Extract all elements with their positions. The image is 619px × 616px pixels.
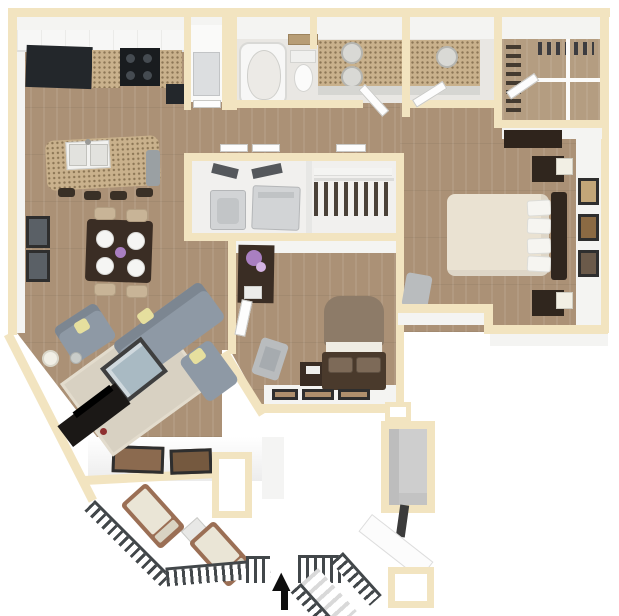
washer-lid bbox=[217, 198, 239, 224]
patio-column-pad bbox=[388, 567, 434, 608]
closet-clothes-left bbox=[506, 42, 521, 112]
corner-cabinet bbox=[25, 45, 92, 89]
burner-3 bbox=[126, 71, 135, 80]
left-wall-face bbox=[17, 30, 25, 333]
master-pillow-1 bbox=[527, 199, 552, 216]
master-wall-bottom-left bbox=[396, 304, 493, 313]
porch-railing-left bbox=[246, 556, 270, 583]
toilet-bowl bbox=[294, 64, 313, 92]
bed2-leaning-frame-3 bbox=[338, 389, 370, 400]
bar-stool-1 bbox=[58, 188, 75, 197]
outer-wall-top bbox=[8, 8, 610, 17]
master-wall-art-1 bbox=[578, 178, 599, 205]
master-wall-bottom-face-2 bbox=[490, 334, 608, 346]
sink-basin-left bbox=[69, 144, 87, 166]
laundry-wall-right bbox=[396, 153, 404, 241]
bar-stool-2 bbox=[84, 191, 101, 200]
wall-art-kitchen-1 bbox=[26, 216, 50, 248]
wall-art-kitchen-2 bbox=[26, 250, 50, 282]
burner-2 bbox=[143, 54, 152, 63]
master-wall-bottom-face-1 bbox=[398, 313, 484, 325]
dining-chair-1 bbox=[94, 207, 116, 220]
counter-end-cabinet bbox=[166, 84, 186, 104]
floor-lamp bbox=[42, 350, 59, 367]
laundry-wall-bottom bbox=[184, 233, 404, 241]
pantry-wall-right bbox=[222, 17, 229, 110]
backsplash-left bbox=[92, 50, 120, 88]
backsplash-right bbox=[160, 50, 182, 88]
master-pillow-2 bbox=[527, 218, 552, 235]
plate-1 bbox=[96, 230, 114, 248]
dryer-panel bbox=[258, 192, 294, 198]
master-wall-art-3 bbox=[578, 250, 599, 277]
master-lamp-2 bbox=[556, 292, 573, 309]
laundry-bifold-door-1 bbox=[220, 144, 248, 152]
outer-wall-right bbox=[600, 8, 609, 333]
dishwasher-end-cap bbox=[146, 150, 160, 186]
patio-storage-interior bbox=[389, 429, 427, 505]
patio-notch bbox=[385, 402, 411, 422]
bed2-leaning-frame-2 bbox=[302, 389, 334, 400]
bath1-wall-bottom bbox=[229, 100, 363, 108]
hall-closet-door bbox=[336, 144, 366, 152]
bar-stool-3 bbox=[110, 191, 127, 200]
pantry-wall-left bbox=[184, 17, 191, 110]
hall-closet-shelf bbox=[314, 168, 392, 176]
dining-chair-2 bbox=[126, 209, 148, 222]
bed2-pillow-2 bbox=[356, 357, 381, 373]
laundry-wall-left bbox=[184, 153, 192, 241]
sink-basin-right bbox=[90, 144, 108, 166]
bed2-wall-left bbox=[228, 241, 236, 354]
entry-side-wall bbox=[262, 437, 284, 499]
dining-chair-4 bbox=[126, 285, 148, 298]
toilet-tank bbox=[290, 50, 316, 63]
master-headboard bbox=[551, 192, 567, 280]
master-pillow-4 bbox=[527, 255, 552, 272]
side-table bbox=[70, 352, 82, 364]
bath2-sink bbox=[436, 46, 458, 68]
closet-wall-bottom bbox=[494, 120, 608, 128]
bath1-sink-1 bbox=[341, 42, 363, 64]
closet-shelf-horizontal bbox=[534, 78, 600, 82]
hall-closet-rod bbox=[314, 178, 394, 181]
faucet bbox=[85, 139, 91, 145]
bed2-wall-bottom bbox=[258, 404, 404, 413]
outer-wall-left bbox=[8, 8, 17, 335]
plate-4 bbox=[127, 259, 145, 277]
floor-plan: ▲ bbox=[0, 0, 619, 616]
console-red-accent bbox=[100, 428, 107, 435]
bed2-leaning-frame-1 bbox=[272, 389, 298, 400]
bar-stool-4 bbox=[136, 188, 153, 197]
master-pillow-3 bbox=[527, 238, 552, 255]
burner-4 bbox=[143, 71, 152, 80]
master-wall-bottom-right bbox=[484, 325, 608, 334]
entry-arrow-stem bbox=[281, 588, 288, 610]
pantry-door bbox=[193, 100, 221, 108]
laundry-wall-top bbox=[184, 153, 404, 161]
plate-3 bbox=[96, 257, 114, 275]
desk-laptop bbox=[244, 286, 262, 299]
refrigerator bbox=[193, 52, 220, 96]
desk-flowers-small bbox=[256, 262, 266, 272]
balcony-wall-art-2 bbox=[170, 448, 213, 474]
plate-2 bbox=[127, 232, 145, 250]
bed2-pillow-1 bbox=[328, 357, 353, 373]
bed2-nightstand-papers bbox=[306, 366, 320, 374]
laundry-bifold-door-2 bbox=[252, 144, 280, 152]
burner-1 bbox=[126, 54, 135, 63]
bath2-wall-band bbox=[410, 17, 494, 39]
bath1-wall-band bbox=[237, 17, 402, 39]
bed2-duvet bbox=[324, 296, 384, 346]
bath1-wall-left bbox=[229, 17, 237, 110]
centerpiece bbox=[115, 247, 126, 258]
stove bbox=[120, 48, 160, 86]
closet-wall-band bbox=[502, 17, 600, 39]
bath1-sink-2 bbox=[341, 66, 363, 88]
hall-closet-clothes bbox=[314, 182, 394, 216]
closet-wall-left bbox=[494, 17, 502, 128]
bathtub-basin bbox=[247, 50, 281, 100]
master-wall-art-2 bbox=[578, 214, 599, 241]
dining-chair-3 bbox=[94, 283, 116, 296]
bath1-wall-stub bbox=[310, 17, 317, 49]
master-lamp-1 bbox=[556, 158, 573, 175]
master-dresser bbox=[504, 130, 562, 148]
entry-vestibule-interior bbox=[219, 459, 245, 511]
